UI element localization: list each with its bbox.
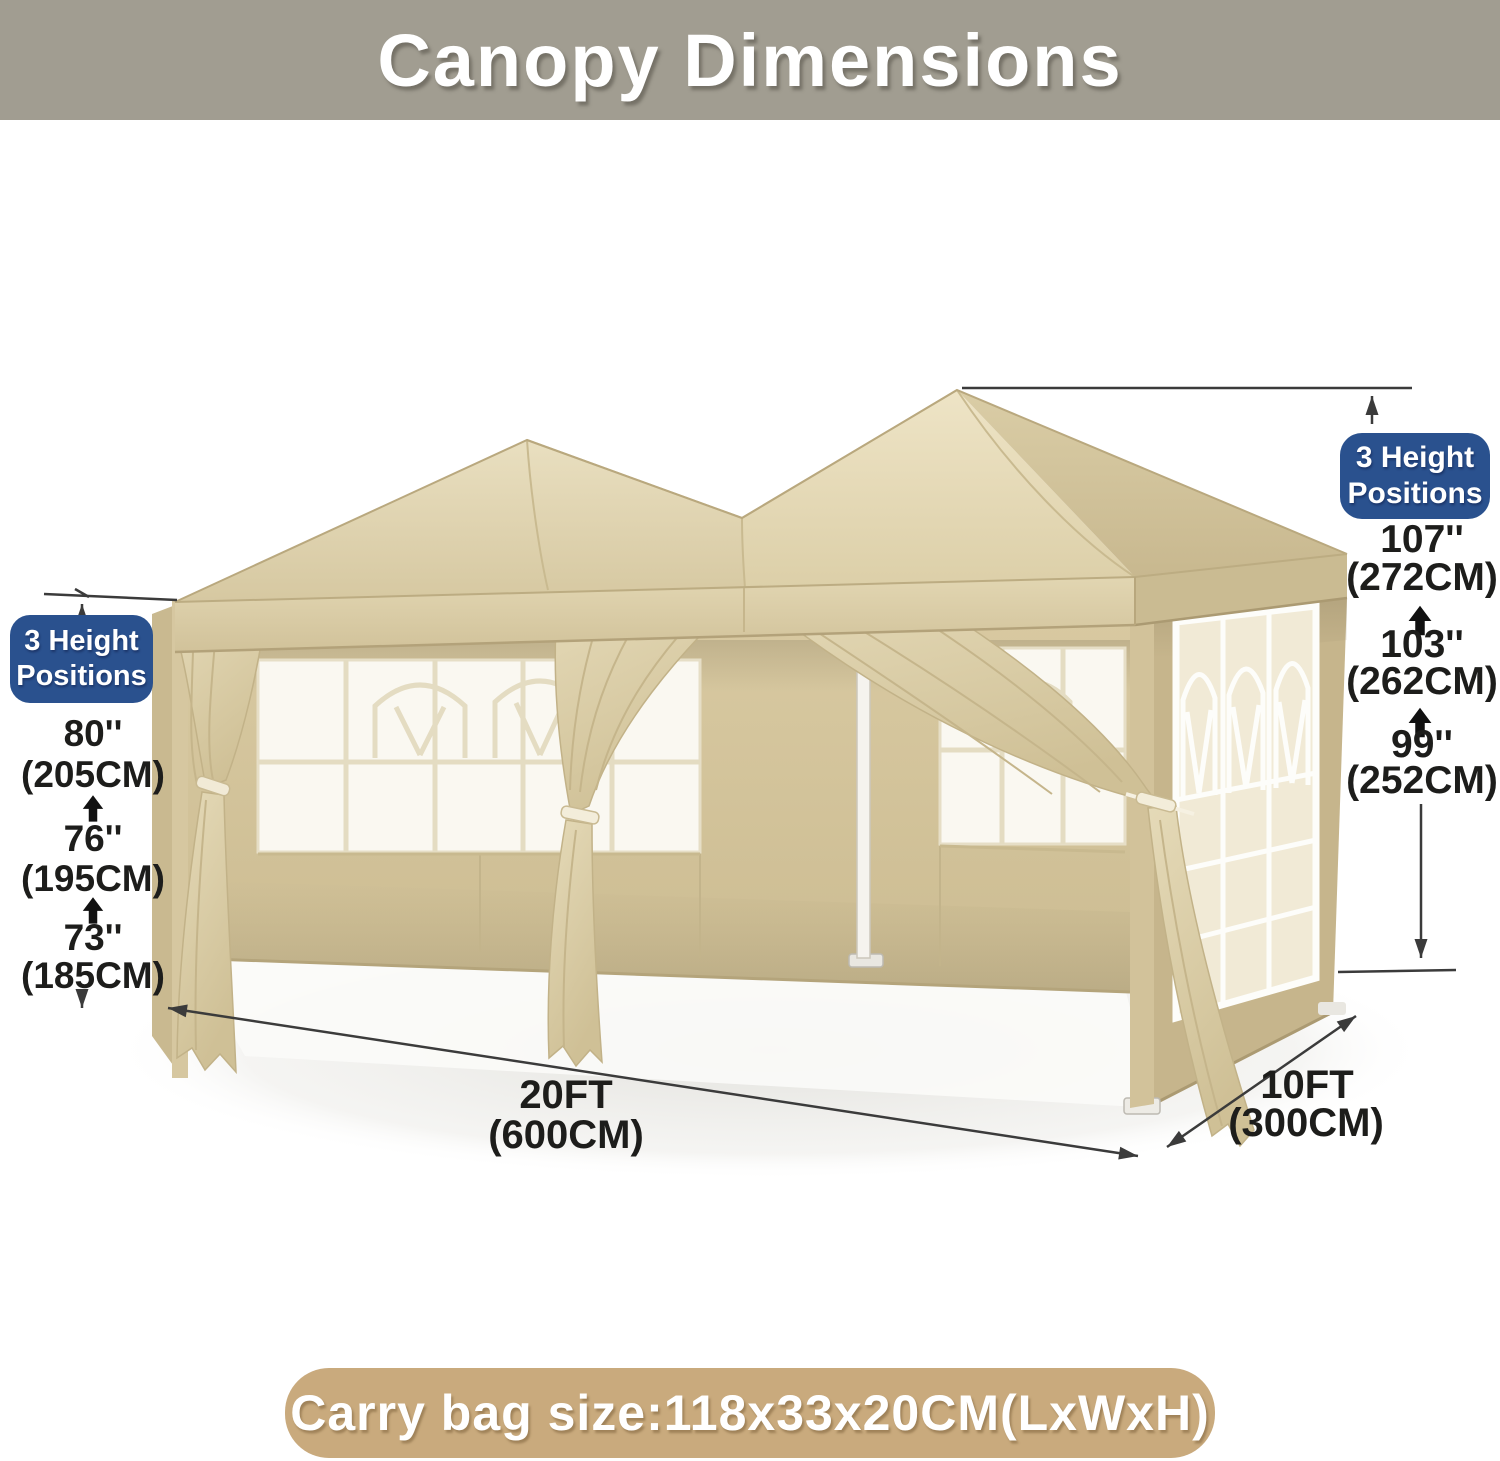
right-height-3-cm: (252CM) <box>1346 759 1498 802</box>
left-badge-line2: Positions <box>10 659 153 694</box>
carry-bag-text: Carry bag size:118x33x20CM(LxWxH) <box>290 1384 1210 1442</box>
left-height-3-cm: (185CM) <box>21 955 165 996</box>
left-height-badge: 3 Height Positions <box>10 615 153 703</box>
left-height-3-in: 73'' <box>64 917 123 958</box>
title-bar: Canopy Dimensions <box>0 0 1500 120</box>
right-height-2-cm: (262CM) <box>1346 660 1498 703</box>
left-badge-line1: 3 Height <box>10 624 153 659</box>
right-badge-line2: Positions <box>1340 476 1490 512</box>
left-height-1-in: 80'' <box>64 713 123 754</box>
page-title: Canopy Dimensions <box>377 18 1122 103</box>
width-cm-label: (300CM) <box>1228 1101 1384 1145</box>
canopy-roof <box>175 390 1347 602</box>
right-badge-line1: 3 Height <box>1340 440 1490 476</box>
left-height-labels: 80'' (205CM) 76'' (195CM) 73'' (185CM) <box>21 713 165 996</box>
length-ft-label: 20FT <box>519 1073 612 1117</box>
canopy-illustration: 80'' (205CM) 76'' (195CM) 73'' (185CM) 1… <box>0 0 1500 1461</box>
carry-bag-banner: Carry bag size:118x33x20CM(LxWxH) <box>285 1368 1215 1458</box>
left-height-2-in: 76'' <box>64 818 123 859</box>
right-height-labels: 107'' (272CM) 103'' (262CM) 99'' (252CM) <box>1346 518 1498 802</box>
right-height-badge: 3 Height Positions <box>1340 433 1490 519</box>
left-height-2-cm: (195CM) <box>21 858 165 899</box>
rear-corner-foot <box>1318 1002 1346 1015</box>
right-height-1-in: 107'' <box>1380 518 1464 561</box>
left-height-1-cm: (205CM) <box>21 754 165 795</box>
length-cm-label: (600CM) <box>488 1113 644 1157</box>
right-height-1-cm: (272CM) <box>1346 556 1498 599</box>
